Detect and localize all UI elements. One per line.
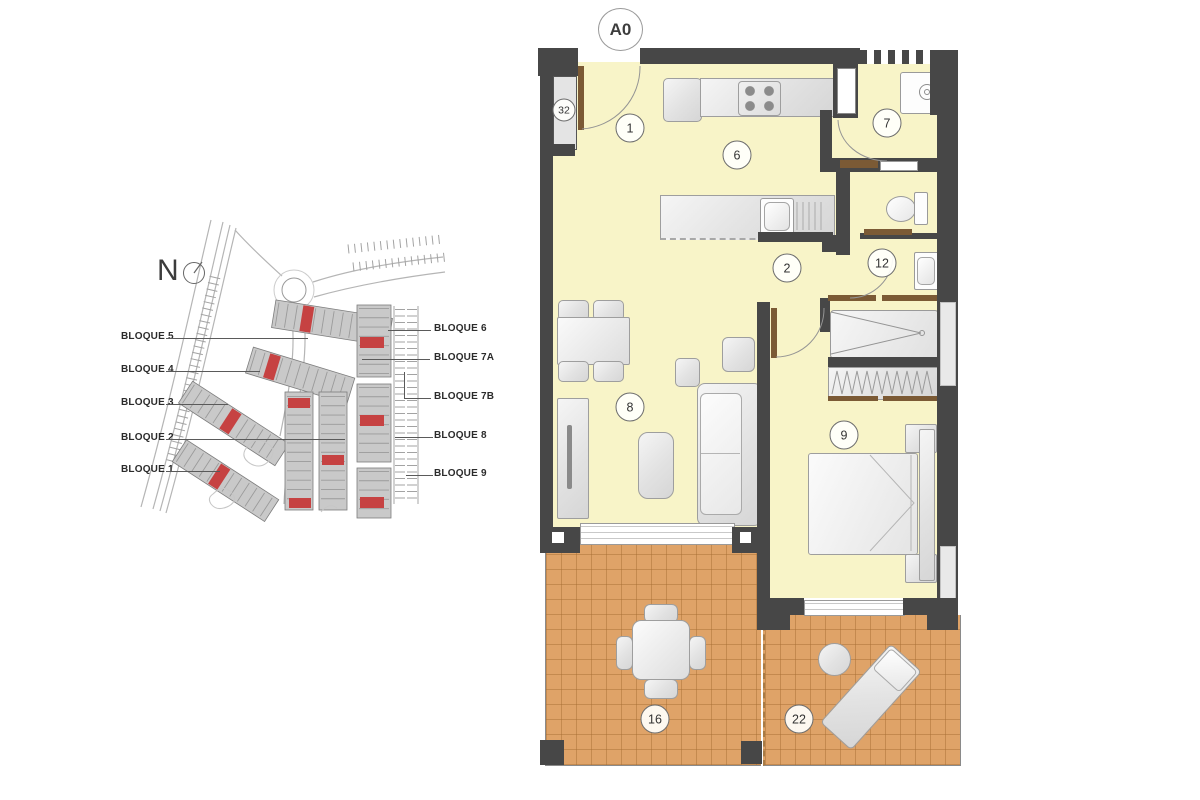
wall-segment — [790, 598, 804, 615]
leader-line — [166, 371, 260, 372]
bloque-label-7a: BLOQUE 7A — [434, 352, 494, 363]
wall-segment — [760, 598, 790, 630]
wall-segment — [903, 598, 927, 615]
bloque-label-2: BLOQUE 2 — [121, 432, 174, 443]
wall-segment — [820, 298, 830, 332]
vent-wall — [860, 50, 930, 64]
sliding-door — [580, 523, 735, 545]
hob-icon — [738, 81, 781, 116]
terrace-chair — [616, 636, 633, 670]
dining-chair — [558, 361, 589, 382]
leader-line — [406, 475, 433, 476]
wall-segment — [930, 50, 958, 115]
bed — [808, 453, 918, 555]
headboard — [919, 429, 935, 581]
dining-chair — [593, 361, 624, 382]
highlight-unit — [360, 497, 384, 508]
bloque-label-9: BLOQUE 9 — [434, 468, 487, 479]
highlight-unit — [288, 398, 310, 408]
round-table — [818, 643, 851, 676]
pocket-door — [864, 229, 912, 235]
toilet-cistern — [914, 192, 928, 225]
fridge — [663, 78, 702, 122]
floor-plan: 32 1 6 7 2 12 8 9 16 22 — [538, 40, 958, 768]
bloque-label-1: BLOQUE 1 — [121, 464, 174, 475]
room-label-7: 7 — [873, 109, 902, 138]
post-inset — [552, 532, 564, 543]
bedroom-door-leaf — [771, 308, 777, 358]
wall-segment — [540, 76, 553, 527]
shower-tray — [830, 310, 939, 359]
bloque-label-3: BLOQUE 3 — [121, 397, 174, 408]
north-compass-icon — [184, 262, 205, 284]
leader-line — [388, 330, 431, 331]
wall-segment — [538, 48, 578, 76]
bloque-label-8: BLOQUE 8 — [434, 430, 487, 441]
leader-line — [166, 404, 228, 405]
highlight-unit — [360, 415, 384, 426]
wall-segment — [822, 235, 850, 252]
wardrobe-door — [883, 396, 937, 401]
sofa — [697, 383, 762, 526]
room-label-32: 32 — [553, 99, 576, 122]
entry-door-leaf — [578, 66, 584, 130]
side-table — [675, 358, 700, 387]
bloque-label-5: BLOQUE 5 — [121, 331, 174, 342]
highlight-unit — [360, 337, 384, 348]
bloque-label-6: BLOQUE 6 — [434, 323, 487, 334]
wall-segment — [927, 598, 958, 630]
north-label: N — [157, 254, 179, 288]
leader-line — [166, 439, 345, 440]
shower-screen — [828, 295, 876, 301]
leader-line — [362, 359, 430, 360]
wall-segment — [553, 144, 575, 156]
post-inset — [740, 532, 751, 543]
room-label-1: 1 — [616, 114, 645, 143]
leader-line — [166, 471, 220, 472]
wall-segment — [828, 357, 937, 367]
room-label-8: 8 — [616, 393, 645, 422]
floorplan-sheet: A0 — [0, 0, 1200, 800]
leader-line — [404, 398, 431, 399]
window — [940, 546, 956, 600]
shower-screen — [882, 295, 937, 301]
wall-segment — [757, 302, 770, 630]
side-table — [722, 337, 755, 372]
highlight-unit — [322, 455, 344, 465]
wardrobe-door — [828, 396, 878, 401]
terrace-post — [741, 741, 762, 764]
bedroom-window — [804, 600, 905, 616]
highlight-unit — [289, 498, 311, 508]
coffee-table — [638, 432, 674, 499]
kitchen-sink — [760, 198, 794, 235]
leader-line — [166, 338, 308, 339]
terrace-chair — [644, 679, 678, 699]
tall-unit — [837, 68, 856, 114]
pocket-door-leaf — [880, 161, 918, 171]
tv-unit — [557, 398, 589, 519]
roundabout — [282, 278, 306, 302]
window — [940, 302, 956, 386]
toilet — [886, 196, 916, 222]
room-label-2: 2 — [773, 254, 802, 283]
leader-line — [395, 437, 433, 438]
room-label-12: 12 — [868, 249, 897, 278]
bloque-label-7b: BLOQUE 7B — [434, 391, 494, 402]
room-label-6: 6 — [723, 141, 752, 170]
leader-line — [404, 372, 405, 398]
room-label-9: 9 — [830, 421, 859, 450]
pocket-door — [840, 160, 878, 168]
wall-segment — [640, 48, 860, 64]
bloque-label-4: BLOQUE 4 — [121, 364, 174, 375]
washbasin — [914, 252, 939, 290]
terrace-table — [632, 620, 690, 680]
terrace-chair — [689, 636, 706, 670]
dining-table — [557, 317, 630, 365]
room-label-22: 22 — [785, 705, 814, 734]
room-label-16: 16 — [641, 705, 670, 734]
sheet-label: A0 — [610, 20, 632, 40]
terrace-post — [540, 740, 564, 765]
